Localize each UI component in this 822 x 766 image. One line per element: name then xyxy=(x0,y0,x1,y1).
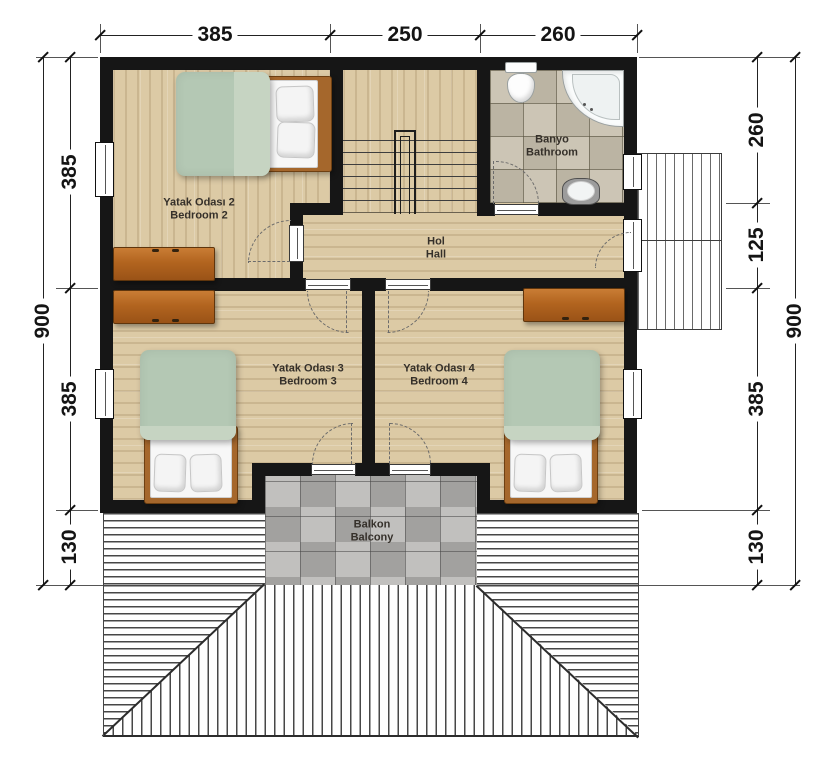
bedroom3-window xyxy=(95,369,114,419)
bathroom-door-leaf xyxy=(493,161,494,204)
outer-wall-top xyxy=(100,57,637,70)
bathtub-faucet-dot xyxy=(590,108,593,111)
bedroom3-label: Yatak Odası 3 Bedroom 3 xyxy=(272,362,344,387)
bedroom2-label: Yatak Odası 2 Bedroom 2 xyxy=(163,196,235,221)
bedroom4-dresser xyxy=(523,288,625,322)
bed3-pillow xyxy=(153,453,186,492)
dresser-knob xyxy=(152,319,159,322)
bathroom-window xyxy=(623,154,642,190)
bedroom4-door-threshold xyxy=(385,279,431,290)
balcony-side-wall-right xyxy=(477,463,490,513)
extension-line xyxy=(480,24,481,53)
bed4-pillow xyxy=(513,453,546,492)
bed3-duvet-fold xyxy=(140,426,236,440)
floor-plan: Yatak Odası 2 Bedroom 2 Hol Hall Banyo B… xyxy=(0,0,822,766)
hall-label: Hol Hall xyxy=(426,235,446,260)
bedroom3-balcony-door-threshold xyxy=(311,464,356,475)
bedroom3-dresser xyxy=(113,290,215,324)
extension-line xyxy=(639,585,800,586)
dresser-knob xyxy=(562,317,569,320)
stair-railing-inner xyxy=(400,136,410,214)
roof-bottom-edge xyxy=(103,735,639,737)
dresser-knob xyxy=(172,249,179,252)
hall-label-en: Hall xyxy=(426,248,446,261)
dresser-knob xyxy=(172,319,179,322)
extension-line xyxy=(330,24,331,53)
bedroom2-door-threshold xyxy=(289,225,304,262)
bedroom3-door-leaf xyxy=(346,291,347,333)
bedroom2-east-wall-upper xyxy=(290,203,303,225)
bedroom3-label-en: Bedroom 3 xyxy=(272,375,344,388)
side-deck-divider xyxy=(637,240,722,241)
bedroom4-label-en: Bedroom 4 xyxy=(403,375,475,388)
bathroom-label: Banyo Bathroom xyxy=(526,133,578,158)
bed2-duvet-fold xyxy=(234,72,270,176)
bed4-pillow xyxy=(549,453,582,492)
bed2-pillow xyxy=(276,121,315,158)
side-deck xyxy=(637,153,722,330)
dimension-label-right-900: 900 xyxy=(783,298,807,343)
dimension-label-left-900: 900 xyxy=(31,298,55,343)
roof-left-edge xyxy=(103,513,104,736)
dresser-knob xyxy=(582,317,589,320)
bathroom-door-threshold xyxy=(494,204,539,215)
bedroom2-label-tr: Yatak Odası 2 xyxy=(163,196,235,209)
dimension-label-right-125: 125 xyxy=(745,222,769,267)
extension-line xyxy=(642,510,770,511)
dimension-label-right-260: 260 xyxy=(745,107,769,152)
bathroom-label-en: Bathroom xyxy=(526,146,578,159)
dimension-label-left-385b: 385 xyxy=(58,376,82,421)
bedroom2-window xyxy=(95,142,114,197)
dimension-label-right-130: 130 xyxy=(745,524,769,569)
bedroom4-balcony-door-leaf xyxy=(389,423,390,464)
bedroom3-label-tr: Yatak Odası 3 xyxy=(272,362,344,375)
extension-line xyxy=(726,288,770,289)
roof-right-band xyxy=(477,513,639,585)
bedroom2-jog-wall-h xyxy=(296,203,343,215)
sink-bowl-icon xyxy=(567,181,595,201)
bedroom2-dresser xyxy=(113,247,215,281)
extension-line xyxy=(100,24,101,53)
balcony-side-wall-left xyxy=(252,463,265,513)
balcony-label-tr: Balkon xyxy=(351,518,394,531)
bathroom-south-wall-a xyxy=(477,203,495,216)
hall-label-tr: Hol xyxy=(426,235,446,248)
bedroom2-door-leaf xyxy=(248,261,290,262)
balcony-label-en: Balcony xyxy=(351,531,394,544)
dimension-label-left-130: 130 xyxy=(58,524,82,569)
bedroom4-door-leaf xyxy=(388,291,389,333)
bed4-duvet-fold xyxy=(504,426,600,440)
roof-left-band xyxy=(103,513,265,585)
dimension-label-top-250: 250 xyxy=(382,23,427,47)
bed2-pillow xyxy=(275,85,314,122)
bedroom4-label-tr: Yatak Odası 4 xyxy=(403,362,475,375)
bathroom-label-tr: Banyo xyxy=(526,133,578,146)
bedroom3-door-threshold xyxy=(305,279,351,290)
bedroom3-4-divider-wall xyxy=(362,278,375,476)
bed3-pillow xyxy=(189,453,222,492)
extension-line xyxy=(726,203,770,204)
dimension-label-right-385: 385 xyxy=(745,376,769,421)
balcony-north-wall-b xyxy=(355,463,390,476)
extension-line xyxy=(639,57,800,58)
bedroom4-window xyxy=(623,369,642,419)
toilet-icon xyxy=(505,62,537,73)
dimension-label-top-260: 260 xyxy=(535,23,580,47)
bedroom3-balcony-door-leaf xyxy=(351,423,352,464)
bathtub-faucet-dot xyxy=(583,103,586,106)
roof-right-edge xyxy=(638,513,639,736)
dimension-label-left-385a: 385 xyxy=(58,149,82,194)
bedroom2-label-en: Bedroom 2 xyxy=(163,209,235,222)
stairwell-wall-right xyxy=(477,57,490,215)
bedroom4-balcony-door-threshold xyxy=(389,464,431,475)
dimension-label-top-385: 385 xyxy=(192,23,237,47)
extension-line xyxy=(56,288,98,289)
extension-line xyxy=(637,24,638,53)
balcony-label: Balkon Balcony xyxy=(351,518,394,543)
extension-line xyxy=(56,510,98,511)
dresser-knob xyxy=(152,249,159,252)
bedroom4-label: Yatak Odası 4 Bedroom 4 xyxy=(403,362,475,387)
